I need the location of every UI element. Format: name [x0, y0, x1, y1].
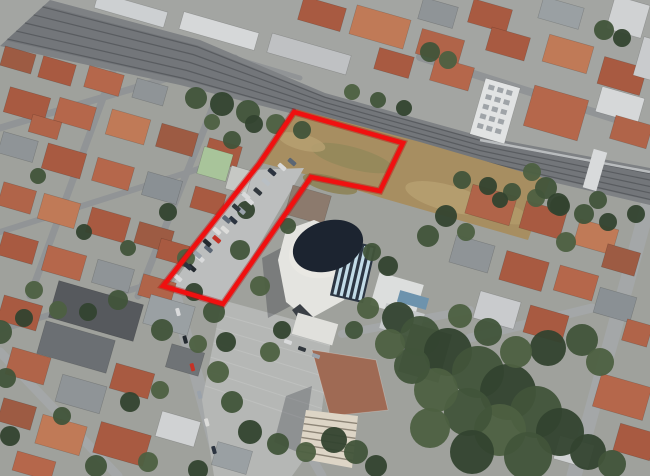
aerial-photo: [0, 0, 650, 476]
screenshot-canvas: [0, 0, 650, 476]
